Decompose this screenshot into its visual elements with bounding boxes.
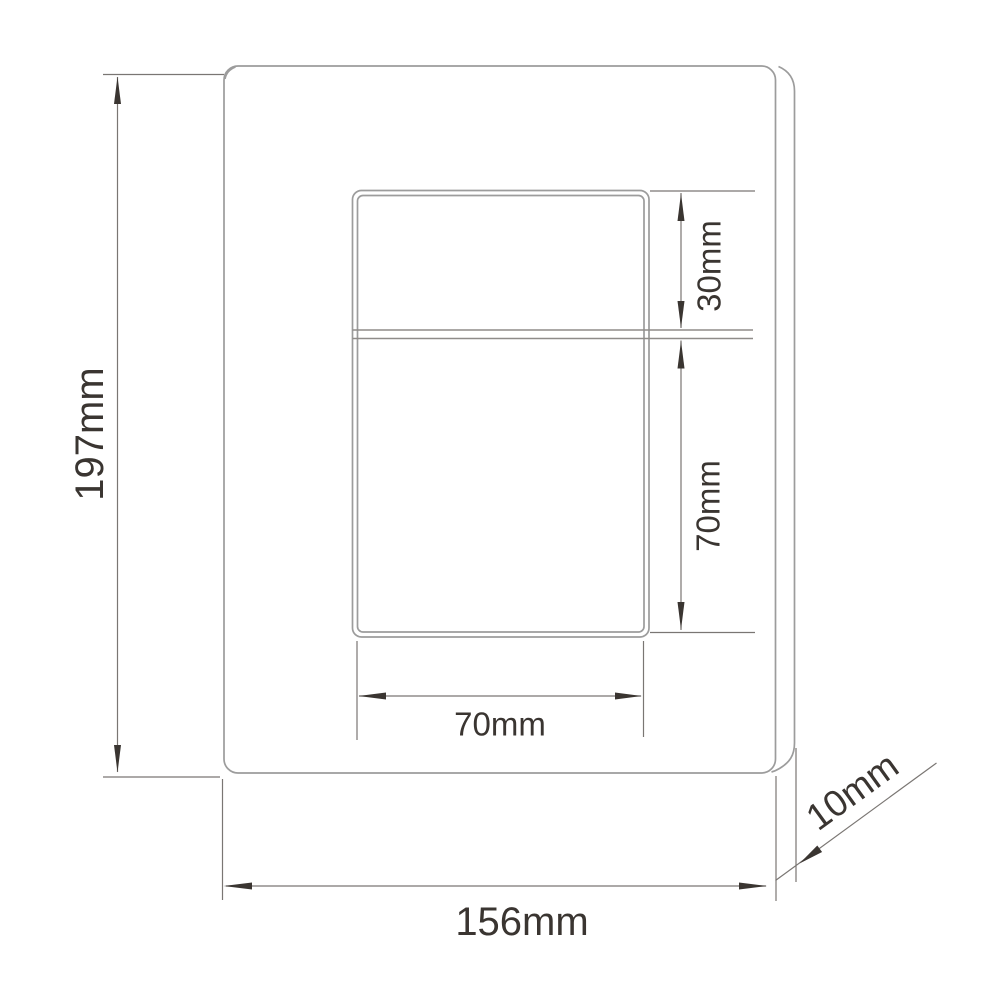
rocker-divider	[353, 330, 754, 339]
arrowhead-diagonal	[800, 846, 823, 864]
arrowhead-left	[224, 883, 253, 890]
dim-label-plate-width: 156mm	[455, 900, 588, 944]
dim-label-opening-bottom-section: 70mm	[690, 460, 727, 552]
dim-label-opening-top-section: 30mm	[691, 220, 728, 312]
opening-outer-outline	[353, 191, 650, 638]
dim-label-plate-height: 197mm	[68, 367, 112, 500]
arrowhead-down	[114, 745, 121, 773]
dim-opening-top-section: 30mm	[650, 191, 755, 328]
dim-opening-width: 70mm	[357, 641, 644, 743]
arrowhead-right	[739, 883, 767, 890]
arrowhead-up	[678, 194, 685, 222]
wall-plate-dimension-drawing: 197mm 156mm 10mm	[0, 0, 1000, 1000]
arrowhead-left	[359, 693, 387, 700]
dim-label-opening-width: 70mm	[454, 706, 546, 743]
arrowhead-down	[678, 602, 685, 630]
dim-opening-bottom-section: 70mm	[650, 341, 755, 633]
dim-plate-height: 197mm	[68, 75, 224, 778]
opening-inner-outline	[358, 196, 645, 633]
technical-drawing-canvas: 197mm 156mm 10mm	[0, 0, 1000, 1000]
arrowhead-up	[114, 77, 121, 105]
arrowhead-right	[615, 693, 642, 700]
dim-plate-width: 156mm	[223, 776, 777, 944]
arrowhead-down	[678, 301, 685, 328]
plate-front-face	[224, 66, 776, 773]
plate-body	[224, 66, 795, 773]
dim-plate-thickness: 10mm	[776, 745, 937, 882]
arrowhead-up	[678, 341, 685, 369]
